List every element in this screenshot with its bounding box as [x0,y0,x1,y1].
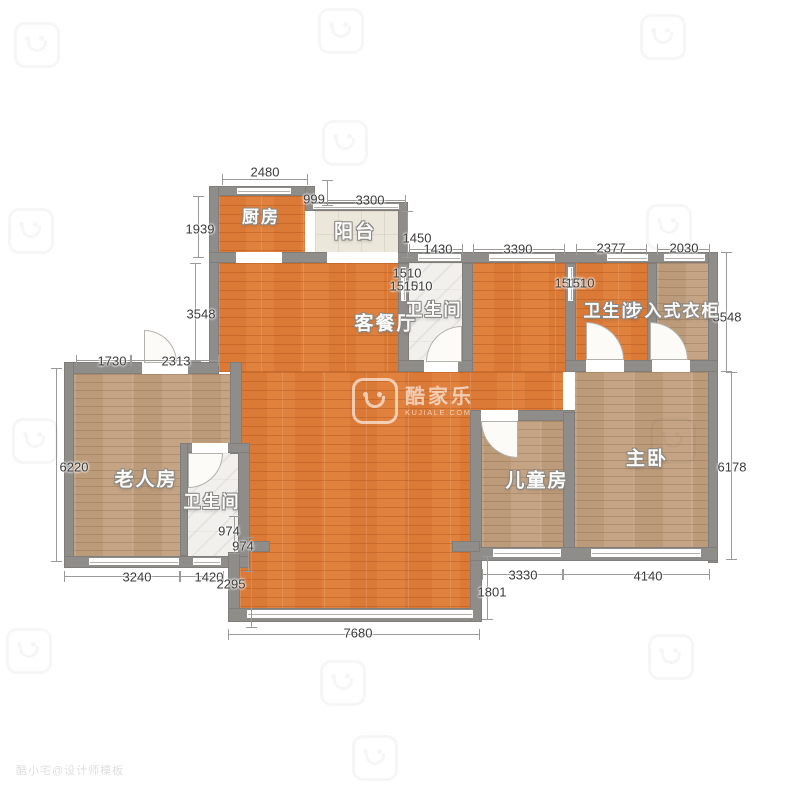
kujiale-watermark: 酷家乐 KUJIALE.COM [352,378,474,424]
dim-974-a: 974 [218,524,240,539]
dim-3548-left: 3548 [187,307,216,322]
dim-1510-e: 1510 [566,276,595,291]
ghost-logo [640,14,686,60]
ghost-logo [352,735,398,781]
dim-3390: 3390 [504,242,533,257]
designer-watermark: 酷小宅@设计师模板 [16,762,124,778]
ghost-logo [322,120,368,166]
window-elder-bottom [88,557,180,566]
opening-bath-right [586,360,624,372]
window-bathl-bottom [192,557,222,566]
floorplan-canvas: 2480 1939 999 3300 1450 1430 3390 2377 2… [0,0,800,800]
dim-6178: 6178 [718,460,747,475]
window-kids-bottom [492,548,562,558]
dimline-6220 [56,368,57,562]
label-elder: 老人房 [114,465,177,492]
dim-999: 999 [303,192,325,207]
label-closet: 步入式衣柜 [626,297,721,322]
hallway-floor [470,372,563,412]
label-kids: 儿童房 [505,466,568,493]
opening-kids [481,410,518,421]
wall-bathc-right [462,263,473,372]
dim-6220: 6220 [60,460,89,475]
dim-1939: 1939 [186,222,215,237]
window-living-bottom [246,609,474,619]
ghost-logo [648,634,694,680]
opening-balcony [327,252,398,263]
watermark-brand: 酷家乐 [405,386,474,408]
label-bath-left: 卫生间 [184,488,241,513]
dim-1510-c: 1510 [404,279,433,294]
ghost-logo [6,628,52,674]
elder-floor-upper [74,374,230,454]
wall-left-upper [209,186,219,374]
dim-3300: 3300 [356,193,385,208]
opening-bath-left [192,443,228,453]
ghost-logo [8,208,54,254]
watermark-site: KUJIALE.COM [405,408,474,417]
label-kitchen: 厨房 [242,203,280,228]
ghost-logo [14,22,60,68]
wall-living-jog [230,362,242,454]
label-balcony: 阳台 [334,217,376,244]
dim-7680: 7680 [344,626,373,641]
ghost-logo [646,204,692,250]
dim-2480: 2480 [251,165,280,180]
dim-1430: 1430 [424,242,453,257]
window-kitchen [236,187,292,195]
dim-974-b: 974 [232,539,254,554]
dim-3240: 3240 [123,570,152,585]
opening-kitchen [236,252,282,263]
wall-stub-right [452,541,480,552]
window-master-bottom [590,548,702,558]
kujiale-logo-icon [352,378,398,424]
dim-1730: 1730 [98,354,127,369]
dim-4140: 4140 [634,569,663,584]
ghost-logo [320,660,366,706]
dim-2295: 2295 [217,577,246,592]
opening-closet [652,360,690,372]
ghost-logo [318,8,364,54]
dim-2313: 2313 [162,354,191,369]
dimline-2295 [251,545,252,628]
dim-3330: 3330 [509,568,538,583]
ghost-logo [650,418,696,464]
dim-1801: 1801 [478,585,507,600]
dim-2377: 2377 [597,241,626,256]
ghost-logo [12,418,58,464]
label-bath-center: 卫生间 [406,296,463,321]
